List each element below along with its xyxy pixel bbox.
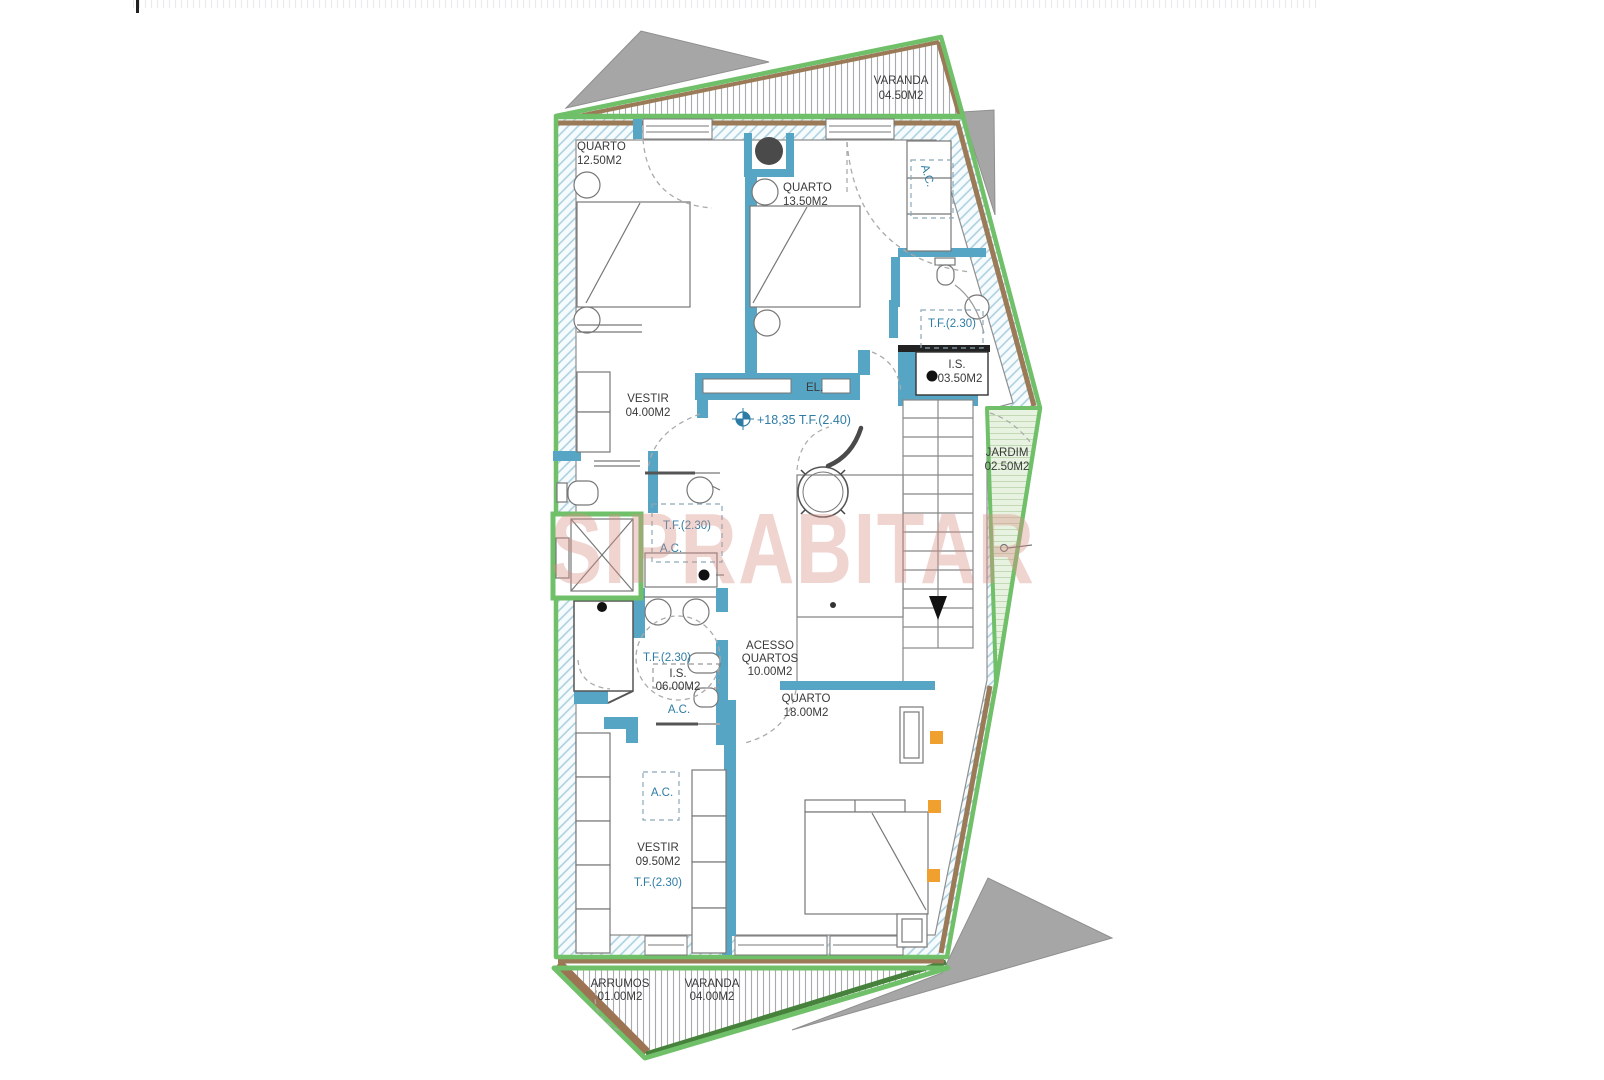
ac-closet-top xyxy=(907,141,951,251)
quarto1-name: QUARTO xyxy=(577,141,626,153)
ac-is2-label: A.C. xyxy=(668,704,690,716)
varanda-bottom-name: VARANDA xyxy=(685,978,740,990)
varanda-top-area: 04.50M2 xyxy=(879,90,924,102)
quarto2-area: 13.50M2 xyxy=(783,196,828,208)
tf-is2-label: T.F.(2.30) xyxy=(643,652,691,664)
balcony-bottom xyxy=(554,962,948,1058)
is2-area: 06.00M2 xyxy=(656,681,701,693)
tf-vestir2-label: T.F.(2.30) xyxy=(634,877,682,889)
acesso-line1: ACESSO xyxy=(746,640,794,652)
vestir2-area: 09.50M2 xyxy=(636,856,681,868)
acesso-line2: QUARTOS xyxy=(742,653,799,665)
page-top-strip xyxy=(130,0,1320,13)
wall-corridor-quarto3 xyxy=(780,681,935,690)
quarto3-name: QUARTO xyxy=(782,693,831,705)
quarto3-area: 18.00M2 xyxy=(784,707,829,719)
quarto2-name: QUARTO xyxy=(783,182,832,194)
vestir1-area: 04.00M2 xyxy=(626,407,671,419)
ac-vestir2-label: A.C. xyxy=(651,787,673,799)
el-label: EL. xyxy=(806,382,823,394)
arrumos-area: 01.00M2 xyxy=(598,991,643,1003)
bed-quarto3 xyxy=(805,812,928,914)
is1-area: 03.50M2 xyxy=(938,373,983,385)
is2-name: I.S. xyxy=(669,668,686,680)
bed-quarto1 xyxy=(577,202,690,307)
acesso-area: 10.00M2 xyxy=(748,666,793,678)
quarto1-area: 12.50M2 xyxy=(577,155,622,167)
tf-top-right-label: T.F.(2.30) xyxy=(928,318,976,330)
bathtub xyxy=(688,653,720,673)
vestir2-name: VESTIR xyxy=(637,842,679,854)
column-dark-circle xyxy=(755,137,783,165)
agency-watermark: SIPRABITAR xyxy=(551,493,1036,605)
bed-quarto2 xyxy=(750,206,860,307)
vestir1-name: VESTIR xyxy=(627,393,669,405)
floor-plan-page: VARANDA 04.50M2 QUARTO 12.50M2 QUARTO 13… xyxy=(0,0,1604,1080)
jardim-name: JARDIM xyxy=(986,447,1029,459)
varanda-top-name: VARANDA xyxy=(874,75,929,87)
is1-name: I.S. xyxy=(948,359,965,371)
floor-plan-svg: VARANDA 04.50M2 QUARTO 12.50M2 QUARTO 13… xyxy=(0,0,1604,1080)
windows-bottom xyxy=(645,936,903,955)
varanda-bottom-area: 04.00M2 xyxy=(690,991,735,1003)
level-mark-label: +18,35 T.F.(2.40) xyxy=(757,413,851,427)
jardim-area: 02.50M2 xyxy=(985,461,1030,473)
shower-tray xyxy=(574,601,633,691)
arrumos-name: ARRUMOS xyxy=(591,978,650,990)
